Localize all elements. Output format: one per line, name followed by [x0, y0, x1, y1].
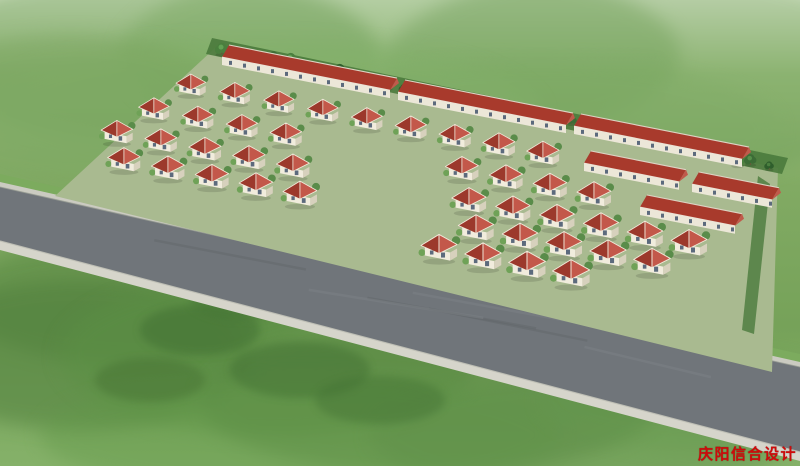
- aerial-site-rendering: 庆阳信合设计: [0, 0, 800, 466]
- site-plan-canvas: [0, 0, 800, 466]
- watermark-text: 庆阳信合设计: [698, 443, 797, 464]
